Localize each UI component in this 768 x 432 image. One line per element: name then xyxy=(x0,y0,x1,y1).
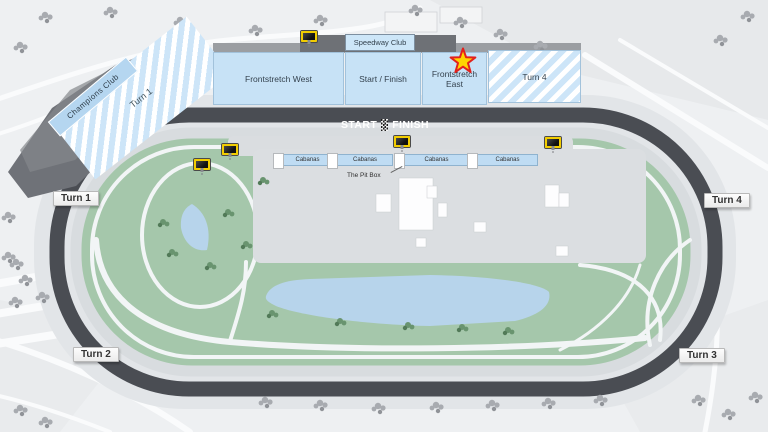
cabanas-strip-4[interactable]: Cabanas xyxy=(477,154,538,166)
turn2-marker: Turn 2 xyxy=(73,347,119,362)
finish-label: FINISH xyxy=(392,119,429,131)
section-frontstretch-west-label: Frontstretch West xyxy=(245,74,312,84)
paddock-area xyxy=(253,149,646,263)
video-board-icon xyxy=(545,137,561,148)
cabanas-label: Cabanas xyxy=(424,157,448,163)
start-finish-banner: START FINISH xyxy=(318,117,452,132)
video-board-icon xyxy=(394,136,410,147)
section-speedway-club-label: Speedway Club xyxy=(354,38,407,47)
section-speedway-club[interactable]: Speedway Club xyxy=(345,34,415,51)
cabanas-strip-1[interactable]: Cabanas xyxy=(283,154,332,166)
section-start-finish-label: Start / Finish xyxy=(359,74,407,84)
cabanas-label: Cabanas xyxy=(295,157,319,163)
video-board-icon xyxy=(222,144,238,155)
section-turn4-label: Turn 4 xyxy=(522,72,546,82)
cabanas-label: Cabanas xyxy=(495,157,519,163)
cabanas-strip-3[interactable]: Cabanas xyxy=(404,154,469,166)
cabanas-label: Cabanas xyxy=(353,157,377,163)
section-start-finish[interactable]: Start / Finish xyxy=(345,52,421,105)
section-frontstretch-west[interactable]: Frontstretch West xyxy=(213,52,344,105)
start-label: START xyxy=(341,119,377,131)
cabanas-strip-2[interactable]: Cabanas xyxy=(337,154,393,166)
speedway-seat-map: Turn 1 Champions Club Frontstretch West … xyxy=(0,0,768,432)
video-board-icon xyxy=(301,31,317,42)
turn1-marker: Turn 1 xyxy=(53,191,99,206)
pit-box-label: The Pit Box xyxy=(347,172,381,179)
turn3-marker: Turn 3 xyxy=(679,348,725,363)
section-turn1-label: Turn 1 xyxy=(128,86,154,110)
star-icon xyxy=(448,47,478,76)
section-turn4-grandstand[interactable]: Turn 4 xyxy=(488,50,581,103)
video-board-icon xyxy=(194,159,210,170)
checkered-flag-icon xyxy=(381,119,388,131)
turn4-marker: Turn 4 xyxy=(704,193,750,208)
